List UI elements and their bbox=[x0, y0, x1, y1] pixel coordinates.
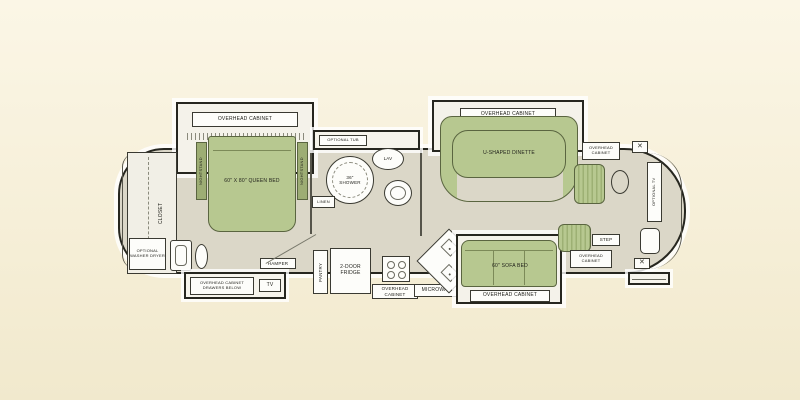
nightstand-left: NIGHTSTAND bbox=[196, 142, 207, 200]
sofa-bed: 60" SOFA BED bbox=[461, 240, 557, 287]
shower-label: 36" SHOWER bbox=[335, 173, 365, 187]
rear-fixture-oval bbox=[195, 244, 208, 269]
pillow-line bbox=[213, 150, 291, 151]
queen-bed-label: 60" X 80" QUEEN BED bbox=[223, 171, 281, 193]
drain-dot bbox=[448, 248, 451, 251]
front-overhead-cabinet-top-label: OVERHEAD CABINET bbox=[582, 142, 620, 160]
lav-sink: LAV bbox=[372, 148, 404, 170]
range-overhead-cabinet-label: OVERHEAD CABINET bbox=[372, 284, 418, 299]
step-line bbox=[632, 279, 666, 280]
optional-tub-label: OPTIONAL TUB bbox=[319, 135, 367, 146]
step-label: STEP bbox=[592, 234, 620, 246]
wall-bedroom-bath bbox=[310, 150, 312, 234]
burner bbox=[398, 261, 406, 269]
fridge: 2-DOOR FRIDGE bbox=[330, 248, 371, 294]
entry-steps bbox=[628, 272, 670, 285]
burner bbox=[398, 271, 406, 279]
nightstand-right: NIGHTSTAND bbox=[297, 142, 308, 200]
toilet bbox=[384, 180, 412, 206]
range-cooktop bbox=[382, 256, 410, 282]
washer-dryer: OPTIONAL WASHER DRYER bbox=[129, 238, 166, 270]
x-marker-icon: ✕ bbox=[632, 141, 648, 153]
washer-unit bbox=[170, 240, 192, 271]
dresser-label: OVERHEAD CABINET DRAWERS BELOW bbox=[190, 277, 254, 295]
burner bbox=[387, 261, 395, 269]
optional-tub-bump: OPTIONAL TUB bbox=[313, 130, 420, 150]
sofa-bed-label: 60" SOFA BED bbox=[480, 259, 540, 275]
toilet-bowl bbox=[390, 186, 406, 200]
passenger-seat bbox=[558, 224, 591, 252]
driver-seat bbox=[574, 164, 605, 204]
dresser-bump: OVERHEAD CABINET DRAWERS BELOW TV bbox=[184, 272, 286, 299]
washer-door bbox=[175, 245, 187, 266]
front-overhead-cabinet-bottom-label: OVERHEAD CABINET bbox=[570, 250, 612, 268]
sofa-slideout: 60" SOFA BED OVERHEAD CABINET bbox=[456, 234, 562, 304]
pantry: PANTRY bbox=[313, 250, 328, 294]
wall-bath-kitchen bbox=[420, 150, 422, 236]
dash-console bbox=[640, 228, 660, 254]
burner bbox=[387, 271, 395, 279]
sofa-overhead-cabinet-label: OVERHEAD CABINET bbox=[470, 290, 550, 302]
floorplan-canvas: OVERHEAD CABINET 60" X 80" QUEEN BED NIG… bbox=[0, 0, 800, 400]
front-tv: OPTIONAL TV bbox=[647, 162, 662, 222]
bedroom-tv: TV bbox=[259, 279, 281, 292]
queen-bed: 60" X 80" QUEEN BED bbox=[208, 136, 296, 232]
steering-wheel bbox=[611, 170, 629, 194]
sofa-back-line bbox=[465, 250, 553, 251]
bedroom-overhead-cabinet-label: OVERHEAD CABINET bbox=[192, 112, 298, 127]
linen-cabinet: LINEN bbox=[312, 196, 335, 208]
x-marker-icon: ✕ bbox=[634, 258, 650, 269]
drain-dot bbox=[448, 273, 451, 276]
dinette-table: U-SHAPED DINETTE bbox=[452, 130, 566, 178]
